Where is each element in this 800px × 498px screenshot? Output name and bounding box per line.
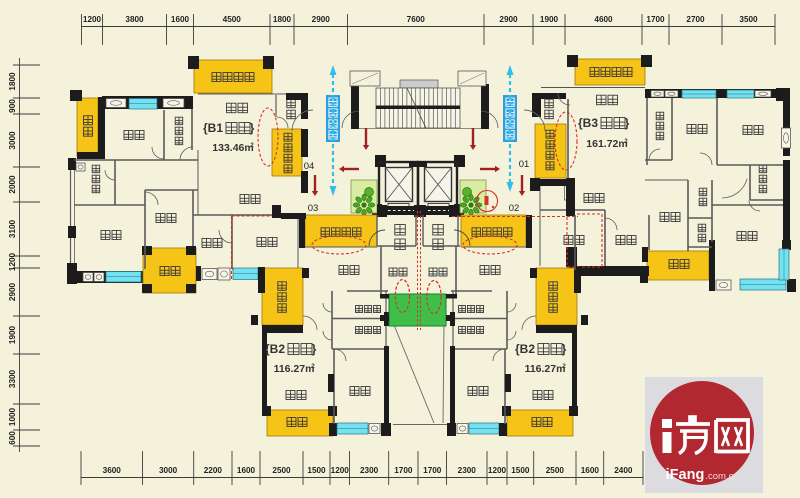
svg-text:1200: 1200 xyxy=(8,252,17,271)
svg-text:3600: 3600 xyxy=(103,466,122,475)
svg-text:}: } xyxy=(312,342,317,356)
svg-text:3000: 3000 xyxy=(159,466,178,475)
svg-text:1600: 1600 xyxy=(581,466,600,475)
svg-text:2500: 2500 xyxy=(272,466,291,475)
svg-text:3500: 3500 xyxy=(739,15,758,24)
svg-text:4500: 4500 xyxy=(223,15,242,24)
svg-text:02: 02 xyxy=(509,203,520,214)
svg-text:{B2: {B2 xyxy=(515,342,535,356)
svg-text:1200: 1200 xyxy=(83,15,102,24)
svg-text:}: } xyxy=(562,342,567,356)
svg-text:}: } xyxy=(625,116,630,130)
svg-text:1500: 1500 xyxy=(511,466,530,475)
svg-text:1700: 1700 xyxy=(646,15,665,24)
svg-text:900: 900 xyxy=(8,99,17,113)
svg-text:{B2: {B2 xyxy=(265,342,285,356)
svg-text:2700: 2700 xyxy=(686,15,705,24)
svg-text:1800: 1800 xyxy=(8,72,17,91)
svg-text:3000: 3000 xyxy=(8,131,17,150)
svg-text:1800: 1800 xyxy=(273,15,292,24)
svg-text:.com.cn: .com.cn xyxy=(705,471,738,482)
svg-text:1600: 1600 xyxy=(237,466,256,475)
svg-text:1200: 1200 xyxy=(331,466,350,475)
svg-text:1700: 1700 xyxy=(423,466,442,475)
svg-text:1900: 1900 xyxy=(540,15,559,24)
svg-text:iFang: iFang xyxy=(666,467,705,483)
svg-text:3800: 3800 xyxy=(125,15,144,24)
svg-text:2900: 2900 xyxy=(8,282,17,301)
svg-text:1000: 1000 xyxy=(8,407,17,426)
svg-text:600: 600 xyxy=(8,431,17,445)
svg-text:1900: 1900 xyxy=(8,325,17,344)
svg-text:116.27m: 116.27m xyxy=(274,363,315,375)
svg-text:01: 01 xyxy=(519,159,530,170)
svg-text:2300: 2300 xyxy=(360,466,379,475)
svg-text:4600: 4600 xyxy=(594,15,613,24)
svg-text:161.72m: 161.72m xyxy=(586,138,627,150)
svg-text:1700: 1700 xyxy=(394,466,413,475)
svg-text:04: 04 xyxy=(304,161,315,172)
svg-text:116.27m: 116.27m xyxy=(525,363,566,375)
svg-text:2900: 2900 xyxy=(312,15,331,24)
svg-text:1200: 1200 xyxy=(488,466,507,475)
svg-text:2300: 2300 xyxy=(458,466,477,475)
svg-text:2200: 2200 xyxy=(204,466,223,475)
svg-text:2400: 2400 xyxy=(614,466,633,475)
svg-text:{B3: {B3 xyxy=(578,116,598,130)
svg-text:1500: 1500 xyxy=(307,466,326,475)
svg-text:}: } xyxy=(250,121,255,135)
svg-text:2500: 2500 xyxy=(546,466,565,475)
svg-text:2900: 2900 xyxy=(499,15,518,24)
svg-text:03: 03 xyxy=(308,203,319,214)
svg-text:{B1: {B1 xyxy=(203,121,223,135)
svg-text:3100: 3100 xyxy=(8,219,17,238)
svg-text:1600: 1600 xyxy=(171,15,190,24)
svg-text:7600: 7600 xyxy=(407,15,426,24)
svg-text:3300: 3300 xyxy=(8,369,17,388)
svg-text:2000: 2000 xyxy=(8,175,17,194)
svg-text:133.46m: 133.46m xyxy=(212,142,253,154)
